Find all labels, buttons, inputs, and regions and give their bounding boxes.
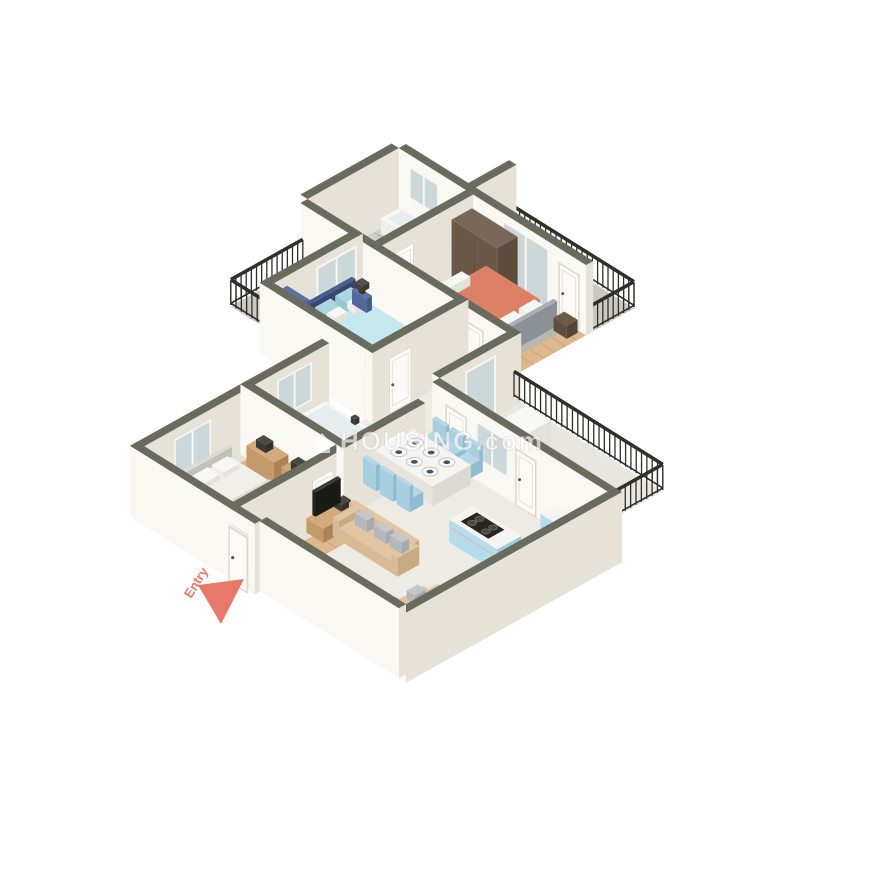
entry-arrow bbox=[198, 579, 244, 624]
floor-plan-svg: HOUSING.com Entry bbox=[0, 0, 870, 870]
watermark: HOUSING.com bbox=[310, 426, 544, 456]
floor-plan-stage: HOUSING.com Entry bbox=[0, 0, 870, 870]
watermark-text: HOUSING.com bbox=[340, 426, 544, 456]
